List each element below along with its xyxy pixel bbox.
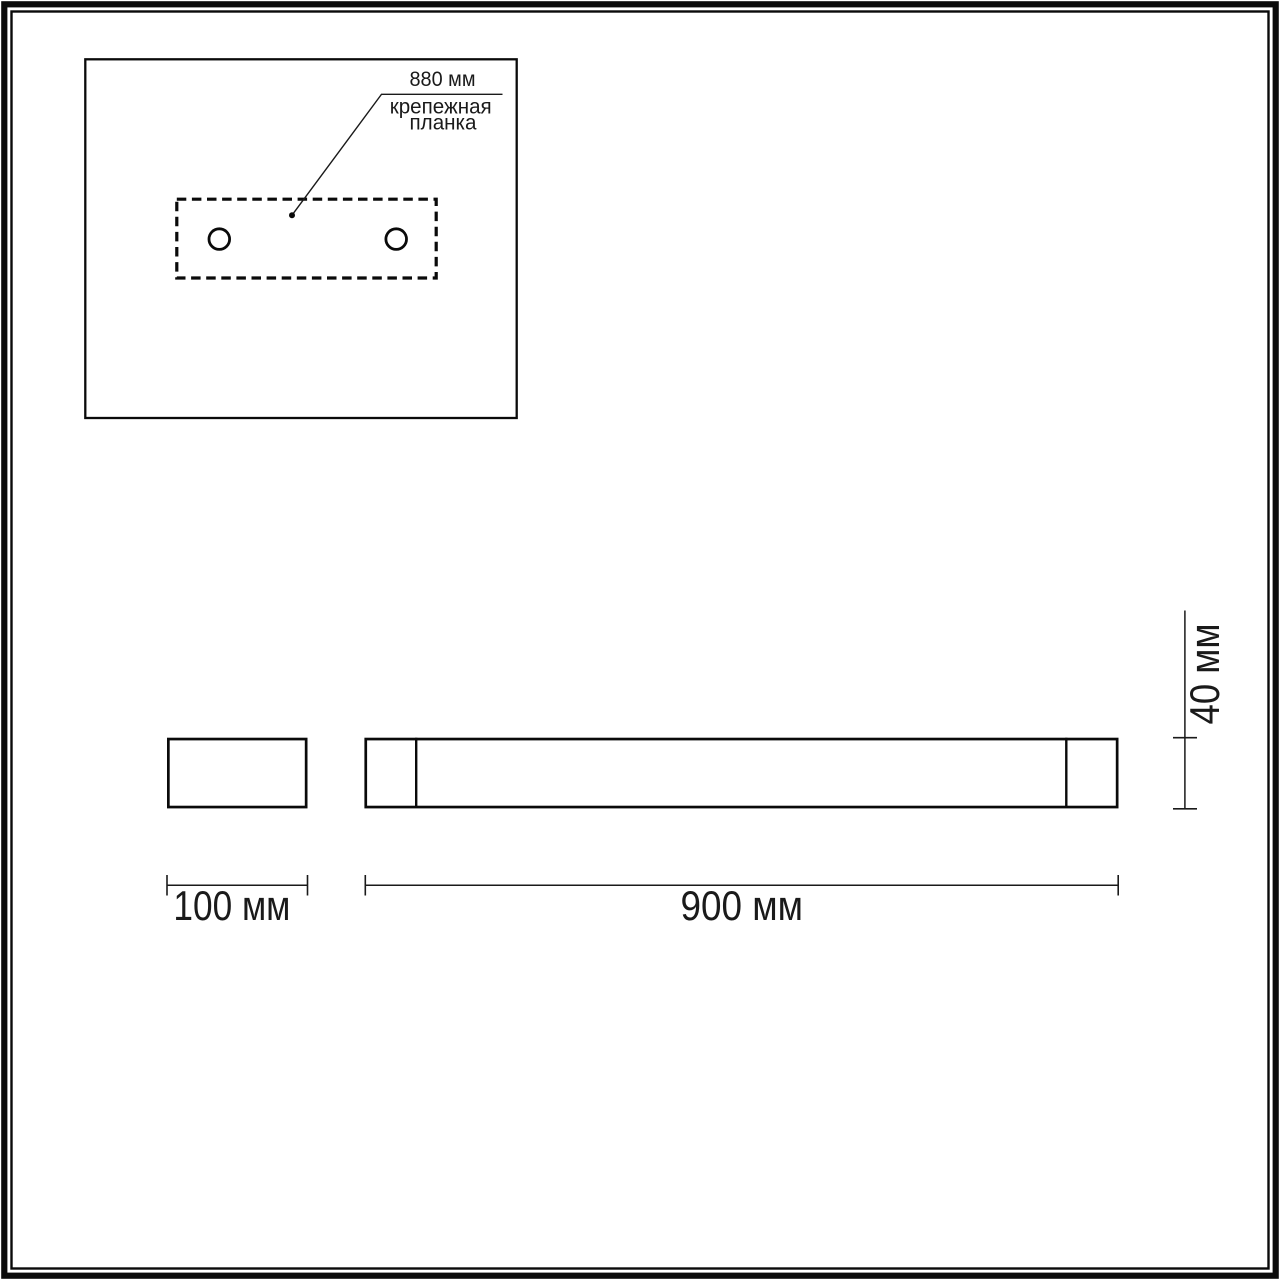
svg-text:100 мм: 100 мм xyxy=(173,882,290,929)
svg-text:900 мм: 900 мм xyxy=(680,882,803,929)
svg-text:планка: планка xyxy=(410,111,477,134)
svg-text:40 мм: 40 мм xyxy=(1181,624,1228,725)
svg-text:880 мм: 880 мм xyxy=(410,68,476,91)
